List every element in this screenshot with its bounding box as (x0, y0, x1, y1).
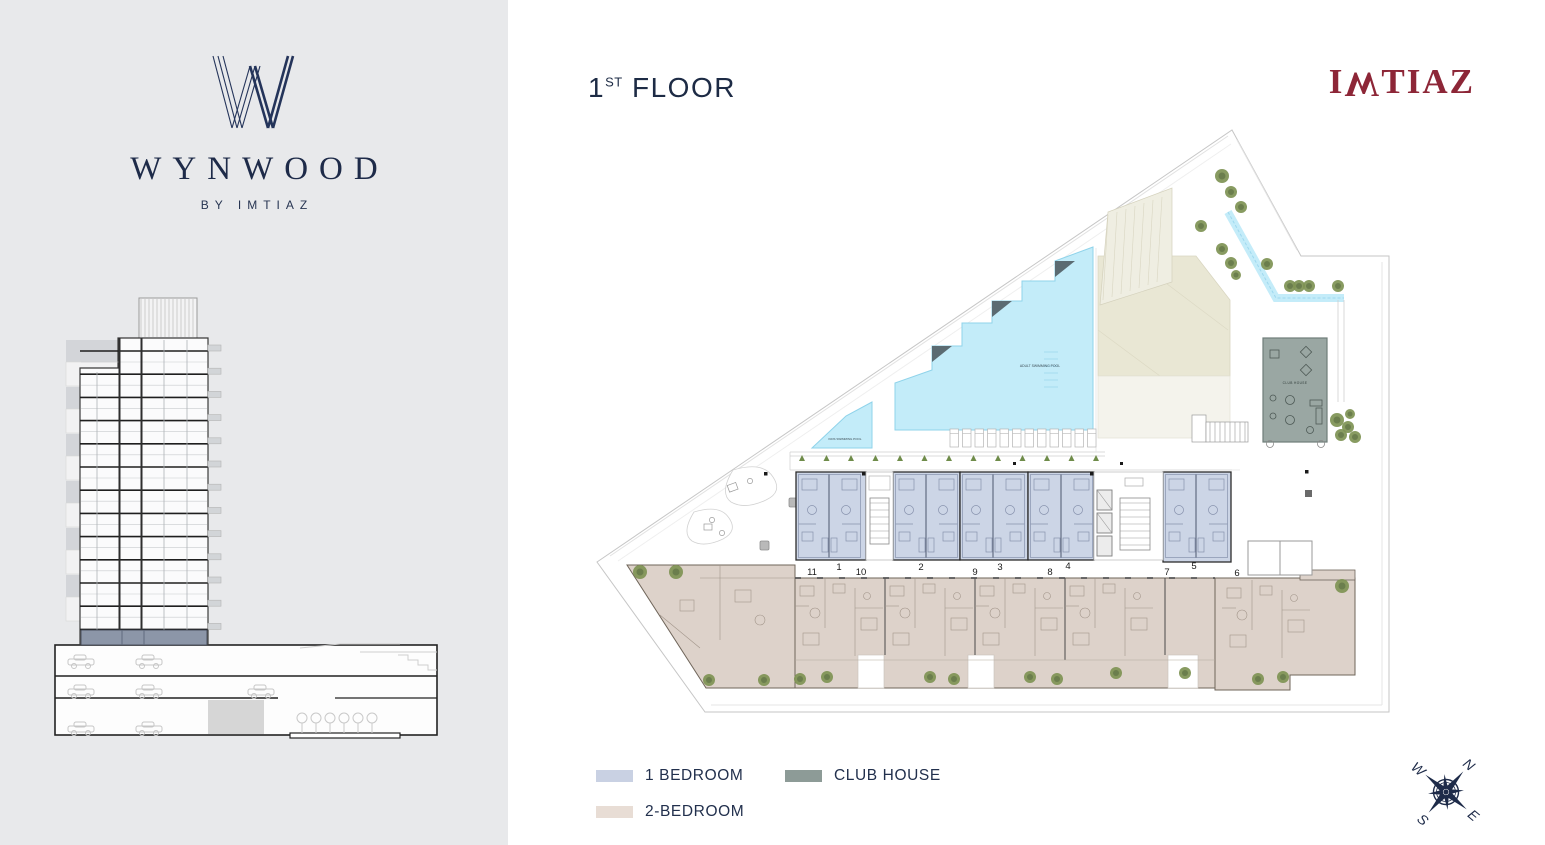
stair-core (866, 472, 893, 560)
legend-label-1-bedroom: 1 BEDROOM (645, 767, 743, 785)
developer-logo: IWTIAZ (1305, 62, 1475, 102)
sidebar: WYNWOOD BY IMTIAZ (0, 0, 508, 845)
elevator-core (1094, 472, 1163, 560)
brand-wordmark: WYNWOOD (0, 151, 508, 188)
club-house-label: CLUB HOUSE (1283, 381, 1308, 385)
unit-number-2: 2 (918, 562, 923, 573)
unit-number-11: 11 (807, 567, 817, 578)
legend-label-2-bedroom: 2-BEDROOM (645, 803, 744, 821)
legend-swatch-2-bedroom-icon (596, 806, 633, 818)
building-elevation-drawing (40, 288, 460, 758)
kids-pool-label: KIDS SWIMMING POOL (828, 437, 861, 441)
legend-swatch-club-house-icon (785, 770, 822, 782)
unit-number-9: 9 (972, 567, 977, 578)
compass-rose: N E S W (1392, 736, 1510, 842)
legend-item-2-bedroom: 2-BEDROOM (596, 803, 785, 821)
two-bedroom-band (627, 565, 1355, 690)
unit-number-10: 10 (856, 567, 867, 578)
page-title: 1ST FLOOR (588, 72, 736, 104)
imtiaz-flipped-m: W (1344, 64, 1381, 104)
unit-number-1: 1 (836, 562, 841, 573)
unit-number-3: 3 (997, 562, 1002, 573)
brand-logo-block: WYNWOOD BY IMTIAZ (0, 52, 508, 212)
brand-byline: BY IMTIAZ (0, 198, 508, 212)
legend-swatch-1-bedroom-icon (596, 770, 633, 782)
adult-pool-label: ADULT SWIMMING POOL (1020, 364, 1060, 368)
legend-item-1-bedroom: 1 BEDROOM (596, 767, 785, 785)
unit-number-7: 7 (1164, 567, 1169, 578)
unit-number-4: 4 (1065, 561, 1070, 572)
unit-number-8: 8 (1047, 567, 1052, 578)
elevation-tower (66, 298, 221, 645)
compass-w: W (1408, 758, 1430, 780)
compass-e: E (1465, 806, 1483, 825)
compass-s: S (1414, 810, 1432, 829)
floor-word: FLOOR (632, 72, 736, 103)
legend-label-club-house: CLUB HOUSE (834, 767, 941, 785)
compass-n: N (1460, 755, 1479, 774)
unit-number-6: 6 (1234, 568, 1239, 579)
legend-item-club-house: CLUB HOUSE (785, 767, 1105, 785)
wynwood-monogram-icon (208, 52, 300, 132)
floor-ordinal: ST (605, 75, 623, 90)
unit-number-5: 5 (1191, 561, 1196, 572)
floor-number: 1 (588, 72, 605, 103)
legend: 1 BEDROOM CLUB HOUSE 2-BEDROOM (596, 758, 1105, 830)
floor-plan-drawing: ADULT SWIMMING POOL KIDS SWIMMING POOL (588, 118, 1412, 722)
page: WYNWOOD BY IMTIAZ (0, 0, 1545, 845)
elevation-podium (55, 644, 437, 738)
